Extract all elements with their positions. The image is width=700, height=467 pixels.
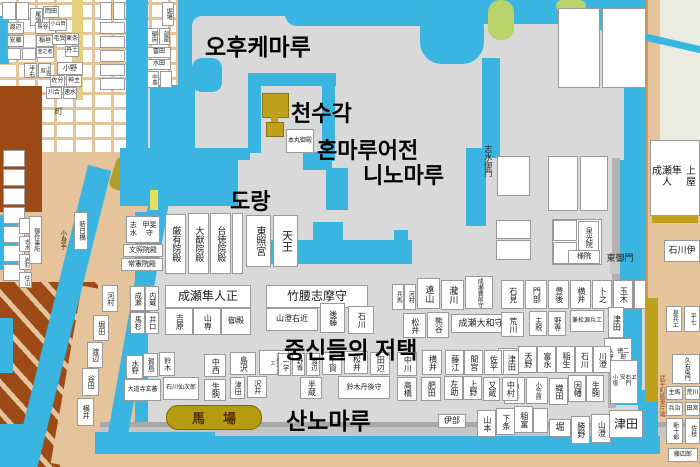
map-label: 町	[52, 103, 64, 118]
plot-label: 山澄右近	[266, 308, 318, 331]
plot-empty	[100, 50, 125, 62]
overlay-label: 산노마루	[286, 402, 371, 436]
plot-label: 津田	[609, 410, 643, 438]
overlay-label: 도랑	[230, 184, 270, 216]
plot-label: 渡辺	[7, 22, 24, 34]
plot-label: 佐分	[50, 75, 65, 87]
plot-label: 河村	[404, 284, 416, 310]
land-pale-green	[660, 0, 700, 145]
plot-label: 又蔵	[483, 377, 500, 401]
plot-empty	[602, 8, 646, 88]
plot-label: 水田	[147, 59, 171, 70]
plot-empty	[100, 36, 125, 48]
plot-empty	[634, 280, 646, 309]
plot-label: 様院	[568, 250, 600, 264]
plot-label: 厳有院殿	[165, 214, 186, 274]
plot-label: 丹土	[65, 46, 79, 57]
plot-label: 玉木	[613, 280, 633, 309]
plot-label: 熊谷	[427, 312, 449, 338]
plot-label: 部屋	[159, 28, 170, 45]
plot-label: 卜之	[592, 280, 612, 309]
plot-label: 堀	[549, 419, 571, 437]
ninomaru-moat-b	[326, 168, 348, 210]
plot-label: 伊部	[438, 414, 466, 428]
plot-label: 渡辺	[87, 342, 103, 368]
plot-label: 新十郎	[666, 418, 683, 444]
plot-label: 富田	[147, 47, 171, 58]
plot-label: 小山田	[49, 19, 67, 31]
plot-label: 石川	[348, 306, 374, 334]
plot-label: 新日橋	[74, 212, 88, 250]
plot-label: 本丸御殿	[286, 129, 314, 153]
plot-label: 佐枝	[685, 418, 700, 444]
map-label: 武平町筋東片端	[655, 350, 667, 442]
plot-empty	[3, 188, 25, 205]
plot-label: 御床	[147, 28, 158, 45]
plot-label: 速水	[63, 87, 77, 99]
plot-label: 上野	[463, 376, 482, 400]
plot-label: 内蔵	[145, 286, 159, 311]
plot-label: 成瀬	[130, 286, 145, 311]
plot-label: 稲生	[556, 346, 575, 373]
plot-label: 半右	[24, 63, 37, 78]
plot-label: 小笠原	[38, 63, 51, 78]
canal-topleft	[126, 0, 148, 152]
plot-empty	[533, 408, 548, 433]
south-inner-moat-l	[313, 222, 343, 242]
plot-label: 中島	[147, 71, 159, 88]
overlay-label: 천수각	[291, 96, 352, 128]
map-label: 東御門	[601, 252, 639, 266]
plot-label: 中西	[204, 354, 226, 377]
plot-label: 釜之者	[36, 47, 54, 58]
overlay-label: 오후케마루	[205, 28, 311, 62]
plot-label: 生駒	[204, 379, 226, 401]
plot-empty	[580, 156, 608, 211]
plot-empty	[100, 2, 112, 20]
plot-empty	[100, 78, 125, 90]
plot-label: 久右衛門	[672, 354, 700, 384]
plot-label: 兵治	[666, 402, 683, 416]
plot-label: 山専	[193, 308, 221, 335]
plot-label: 津田	[503, 350, 519, 375]
plot-label: 住山	[19, 272, 32, 288]
plot-empty	[548, 156, 578, 211]
plot-label: 山澄	[591, 414, 611, 443]
plot-label: 堀場	[162, 2, 174, 26]
plot-label: 天王	[273, 215, 298, 267]
plot-empty	[160, 71, 172, 88]
plot-empty	[558, 8, 600, 88]
honmaru-moat-join	[238, 148, 250, 160]
plot-label: 川合	[46, 87, 62, 99]
plot-label: 神主	[66, 75, 82, 87]
plot-empty	[232, 213, 243, 274]
plot-label: 志水甲斐守	[126, 216, 160, 243]
plot-label: 東照宮	[246, 215, 271, 267]
plot-label: 大道寺玄蕃	[124, 379, 161, 401]
plot-label: 文照院殿	[123, 244, 163, 257]
plot-label: 兼松源兵エ	[570, 310, 604, 332]
plot-label: 島沢	[230, 352, 256, 375]
plot-label: 堀田	[93, 315, 109, 341]
plot-label: 荒川	[501, 312, 524, 337]
plot-label: 甚兵エ	[666, 306, 682, 332]
plot-label: 山本	[477, 410, 496, 437]
plot-empty	[100, 22, 125, 34]
plot-empty	[3, 169, 25, 186]
plot-label: 川澄	[593, 346, 611, 373]
yellow-gate-marker	[150, 190, 158, 210]
bottom-bank	[60, 454, 700, 467]
plot-label: 竹腰志摩守	[266, 285, 368, 308]
plot-label: 成瀬隼人上屋	[650, 140, 700, 216]
water-lump-3	[192, 58, 222, 92]
plot-label: 横井	[422, 350, 442, 375]
map-label: 小身手	[55, 219, 68, 261]
plot-label: 横井	[77, 398, 94, 426]
left-edge-water-3	[0, 318, 13, 373]
plot-label: 平七	[684, 306, 700, 332]
plot-label: 沢井	[247, 376, 267, 398]
plot-label: 賀島	[143, 353, 158, 377]
overlay-label: 중신들의 저택	[284, 331, 417, 365]
plot-label: 藤江	[445, 350, 464, 375]
plot-empty	[100, 64, 125, 76]
plot-label: 左助	[444, 376, 463, 400]
plot-label: 石川	[575, 346, 593, 373]
plot-label: 河村	[102, 285, 118, 312]
plot-label: 荒川	[685, 386, 700, 400]
plot-label: 下条	[496, 408, 515, 435]
plot-label: 御作事所	[29, 216, 42, 264]
plot-label: 豊後	[548, 280, 569, 309]
plot-label: 井口	[145, 312, 159, 334]
honmaru-moat-left	[248, 86, 261, 153]
plot-label: 吉原	[165, 308, 193, 335]
plot-label: 水野	[126, 355, 143, 379]
plot-label: 横井	[570, 280, 591, 309]
plot-label: 谷田	[82, 368, 99, 396]
plot-label: 主税	[529, 311, 547, 336]
plot-label: 生駒	[586, 375, 604, 402]
plot-label: 鈴木	[159, 352, 175, 376]
vegetation-1	[488, 0, 514, 40]
plot-label: 富永	[537, 346, 556, 373]
plot-label: 高橋	[397, 377, 417, 401]
moat-pool-west	[120, 148, 238, 206]
plot-label: 小野	[57, 62, 83, 75]
plot-label: 東条	[65, 33, 79, 45]
plot-label: 藤四郎	[668, 448, 698, 462]
plot-label: 兵馬	[392, 284, 404, 310]
plot-label: 天野	[518, 346, 537, 373]
plot-label: 津田	[608, 307, 624, 338]
plot-label: 稲富	[514, 406, 533, 433]
plot-label: 石川伊	[664, 240, 700, 262]
overlay-label: 니노마루	[363, 158, 444, 190]
plot-empty	[496, 240, 531, 260]
plot-label: 因幡	[568, 375, 586, 402]
plot-label: 瀧川	[441, 280, 464, 310]
plot-label: 小塩安右ヱ門	[610, 360, 638, 404]
tenshu-small-keep	[266, 122, 284, 137]
plot-label: 鈴木丹後守	[338, 376, 390, 399]
plot-empty	[22, 48, 36, 60]
plot-label: 成瀬隼人正	[165, 285, 251, 308]
plot-empty	[16, 2, 29, 20]
plot-label: 田宮	[685, 402, 700, 416]
plot-label: 佐平	[484, 350, 502, 375]
south-inner-moat-r	[394, 230, 408, 264]
plot-label: 野専	[548, 311, 566, 336]
plot-label: 勝野	[571, 416, 590, 444]
plot-label: 半蔵	[300, 377, 322, 399]
baba-oval: 馬場	[166, 405, 262, 430]
plot-label: 肥田	[421, 377, 441, 401]
water-lump-2	[420, 6, 484, 64]
tenshu-keep	[262, 93, 289, 118]
map: 志水甲斐守文照院殿常憲院殿厳有院殿大猷院殿台徳院殿東照宮天王成瀬隼人正吉原山専御…	[0, 0, 700, 467]
plot-label: 岡田	[43, 6, 59, 18]
map-label: 志水御門	[480, 132, 495, 190]
channel-west	[150, 85, 195, 155]
plot-label: 安藤	[7, 35, 24, 47]
plot-empty	[2, 2, 16, 20]
plot-label: 遠山	[417, 278, 440, 309]
plot-label: 成瀬豊前守	[465, 276, 493, 309]
plot-label: 中村	[502, 377, 518, 401]
plot-label: 小笠原	[526, 377, 548, 404]
plot-label: 織田	[549, 378, 568, 405]
plot-empty	[496, 220, 531, 239]
plot-label: 馬杉	[130, 312, 145, 334]
plot-label: 泉光院	[578, 221, 599, 253]
plot-label: 門部	[525, 280, 547, 309]
left-edge-water-4	[0, 424, 30, 467]
plot-label: 台徳院殿	[210, 213, 231, 274]
plot-empty	[497, 156, 530, 196]
plot-label: 間宮	[464, 350, 483, 375]
plot-label: 主馬	[666, 386, 683, 400]
plot-label: 石川仙次郎	[163, 377, 199, 400]
water-lump-1	[285, 0, 435, 26]
plot-label: 石見	[501, 280, 524, 309]
plot-empty	[113, 2, 125, 20]
plot-empty	[553, 220, 577, 241]
honmaru-moat-top	[248, 73, 336, 86]
plot-label: 後藤	[320, 303, 345, 333]
plot-empty	[7, 48, 21, 60]
plot-label: 常憲院殿	[121, 258, 163, 271]
plot-label: 大猷院殿	[188, 213, 209, 274]
plot-label: 津田	[230, 377, 245, 399]
plot-label: 御殿	[221, 308, 251, 335]
plot-empty	[3, 150, 25, 167]
